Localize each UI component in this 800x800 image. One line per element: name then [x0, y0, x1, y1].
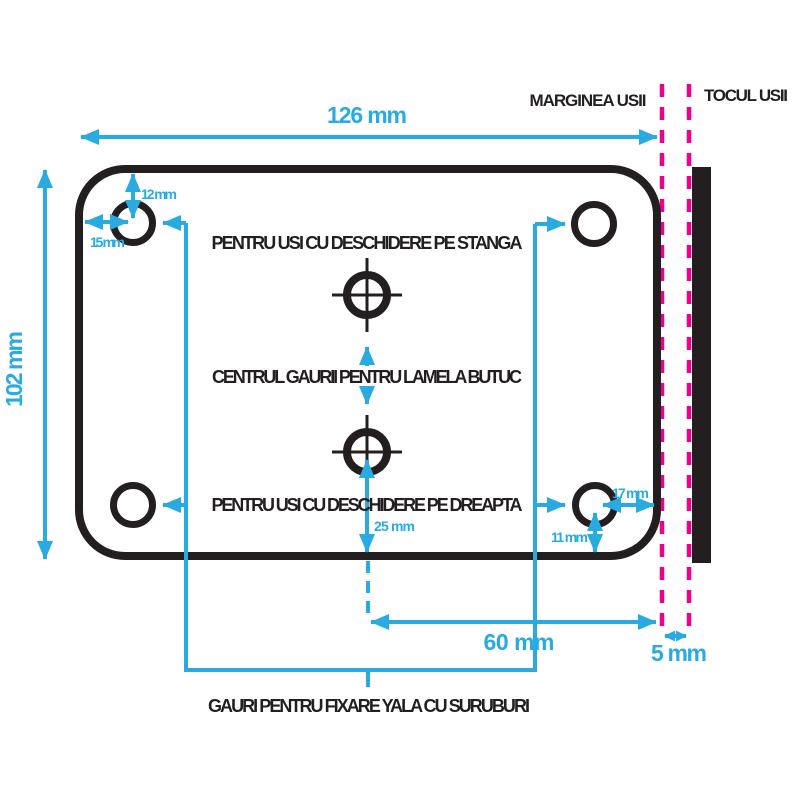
- cylinder-center-label: CENTRUL GAURII PENTRU LAMELA BUTUC: [212, 367, 522, 387]
- edge-to-frame-label: 5 mm: [651, 640, 707, 666]
- diagram-canvas: 126 mm 102 mm 12 mm 15 mm 17 mm 11 mm 25…: [0, 0, 800, 800]
- height-dimension-label: 102 mm: [1, 331, 27, 407]
- door-edge-label: MARGINEA USII: [530, 91, 647, 110]
- left-opening-label: PENTRU USI CU DESCHIDERE PE STANGA: [212, 233, 523, 253]
- hole-right-offset-label: 17 mm: [612, 485, 649, 501]
- cylinder-bottom-offset-label: 25 mm: [374, 518, 415, 534]
- hole-top-offset-label: 12 mm: [141, 186, 177, 202]
- hole-left-offset-label: 15 mm: [90, 234, 125, 250]
- door-frame-label: TOCUL USII: [704, 86, 788, 105]
- screw-holes-label: GAURI PENTRU FIXARE YALA CU SURUBURI: [208, 696, 530, 716]
- screw-hole-bottom-left: [114, 486, 153, 525]
- screw-holes-bracket: [186, 223, 535, 670]
- screw-hole-top-right: [575, 205, 614, 244]
- width-dimension-label: 126 mm: [327, 102, 407, 128]
- right-opening-label: PENTRU USI CU DESCHIDERE PE DREAPTA: [212, 495, 523, 515]
- cylinder-to-edge-label: 60 mm: [484, 629, 555, 655]
- door-frame-bar: [692, 167, 711, 563]
- cylinder-crosshair-top: [332, 258, 402, 332]
- lock-mounting-diagram: 126 mm 102 mm 12 mm 15 mm 17 mm 11 mm 25…: [0, 0, 800, 800]
- hole-bottom-offset-label: 11 mm: [551, 529, 588, 545]
